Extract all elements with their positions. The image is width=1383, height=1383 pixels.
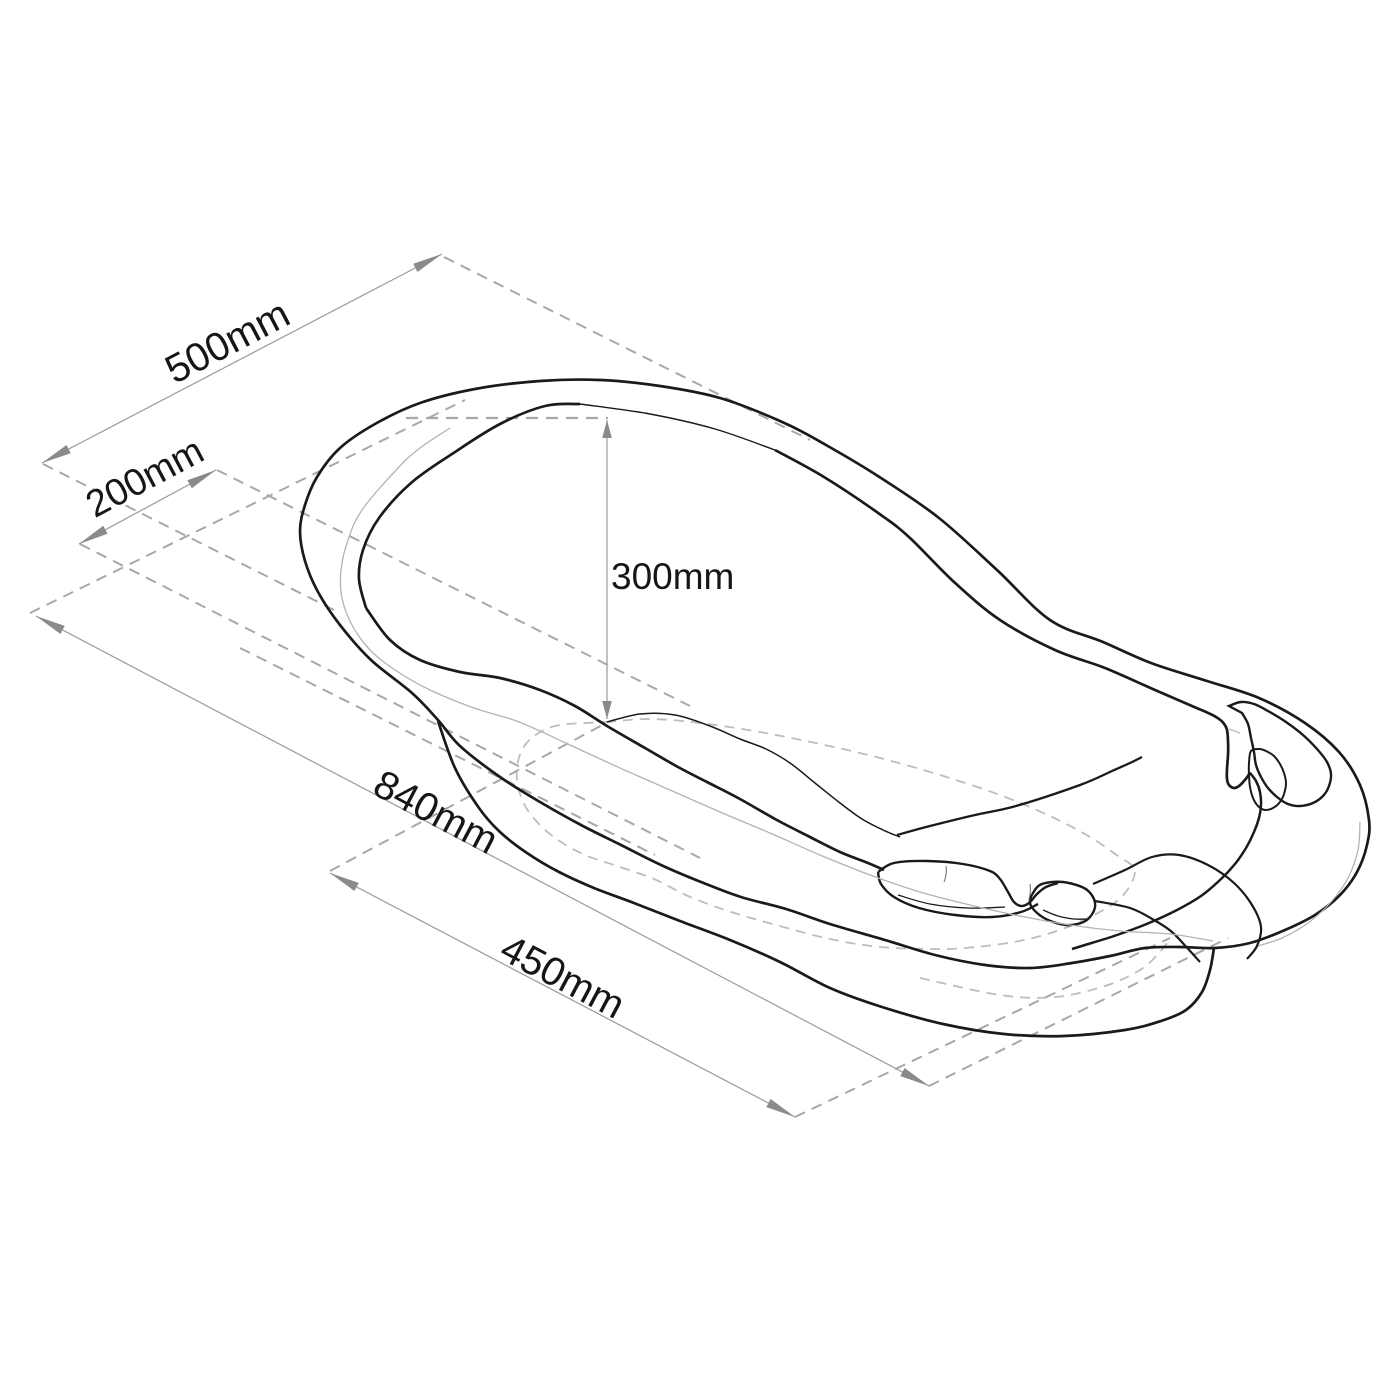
svg-text:300mm: 300mm <box>611 556 734 597</box>
